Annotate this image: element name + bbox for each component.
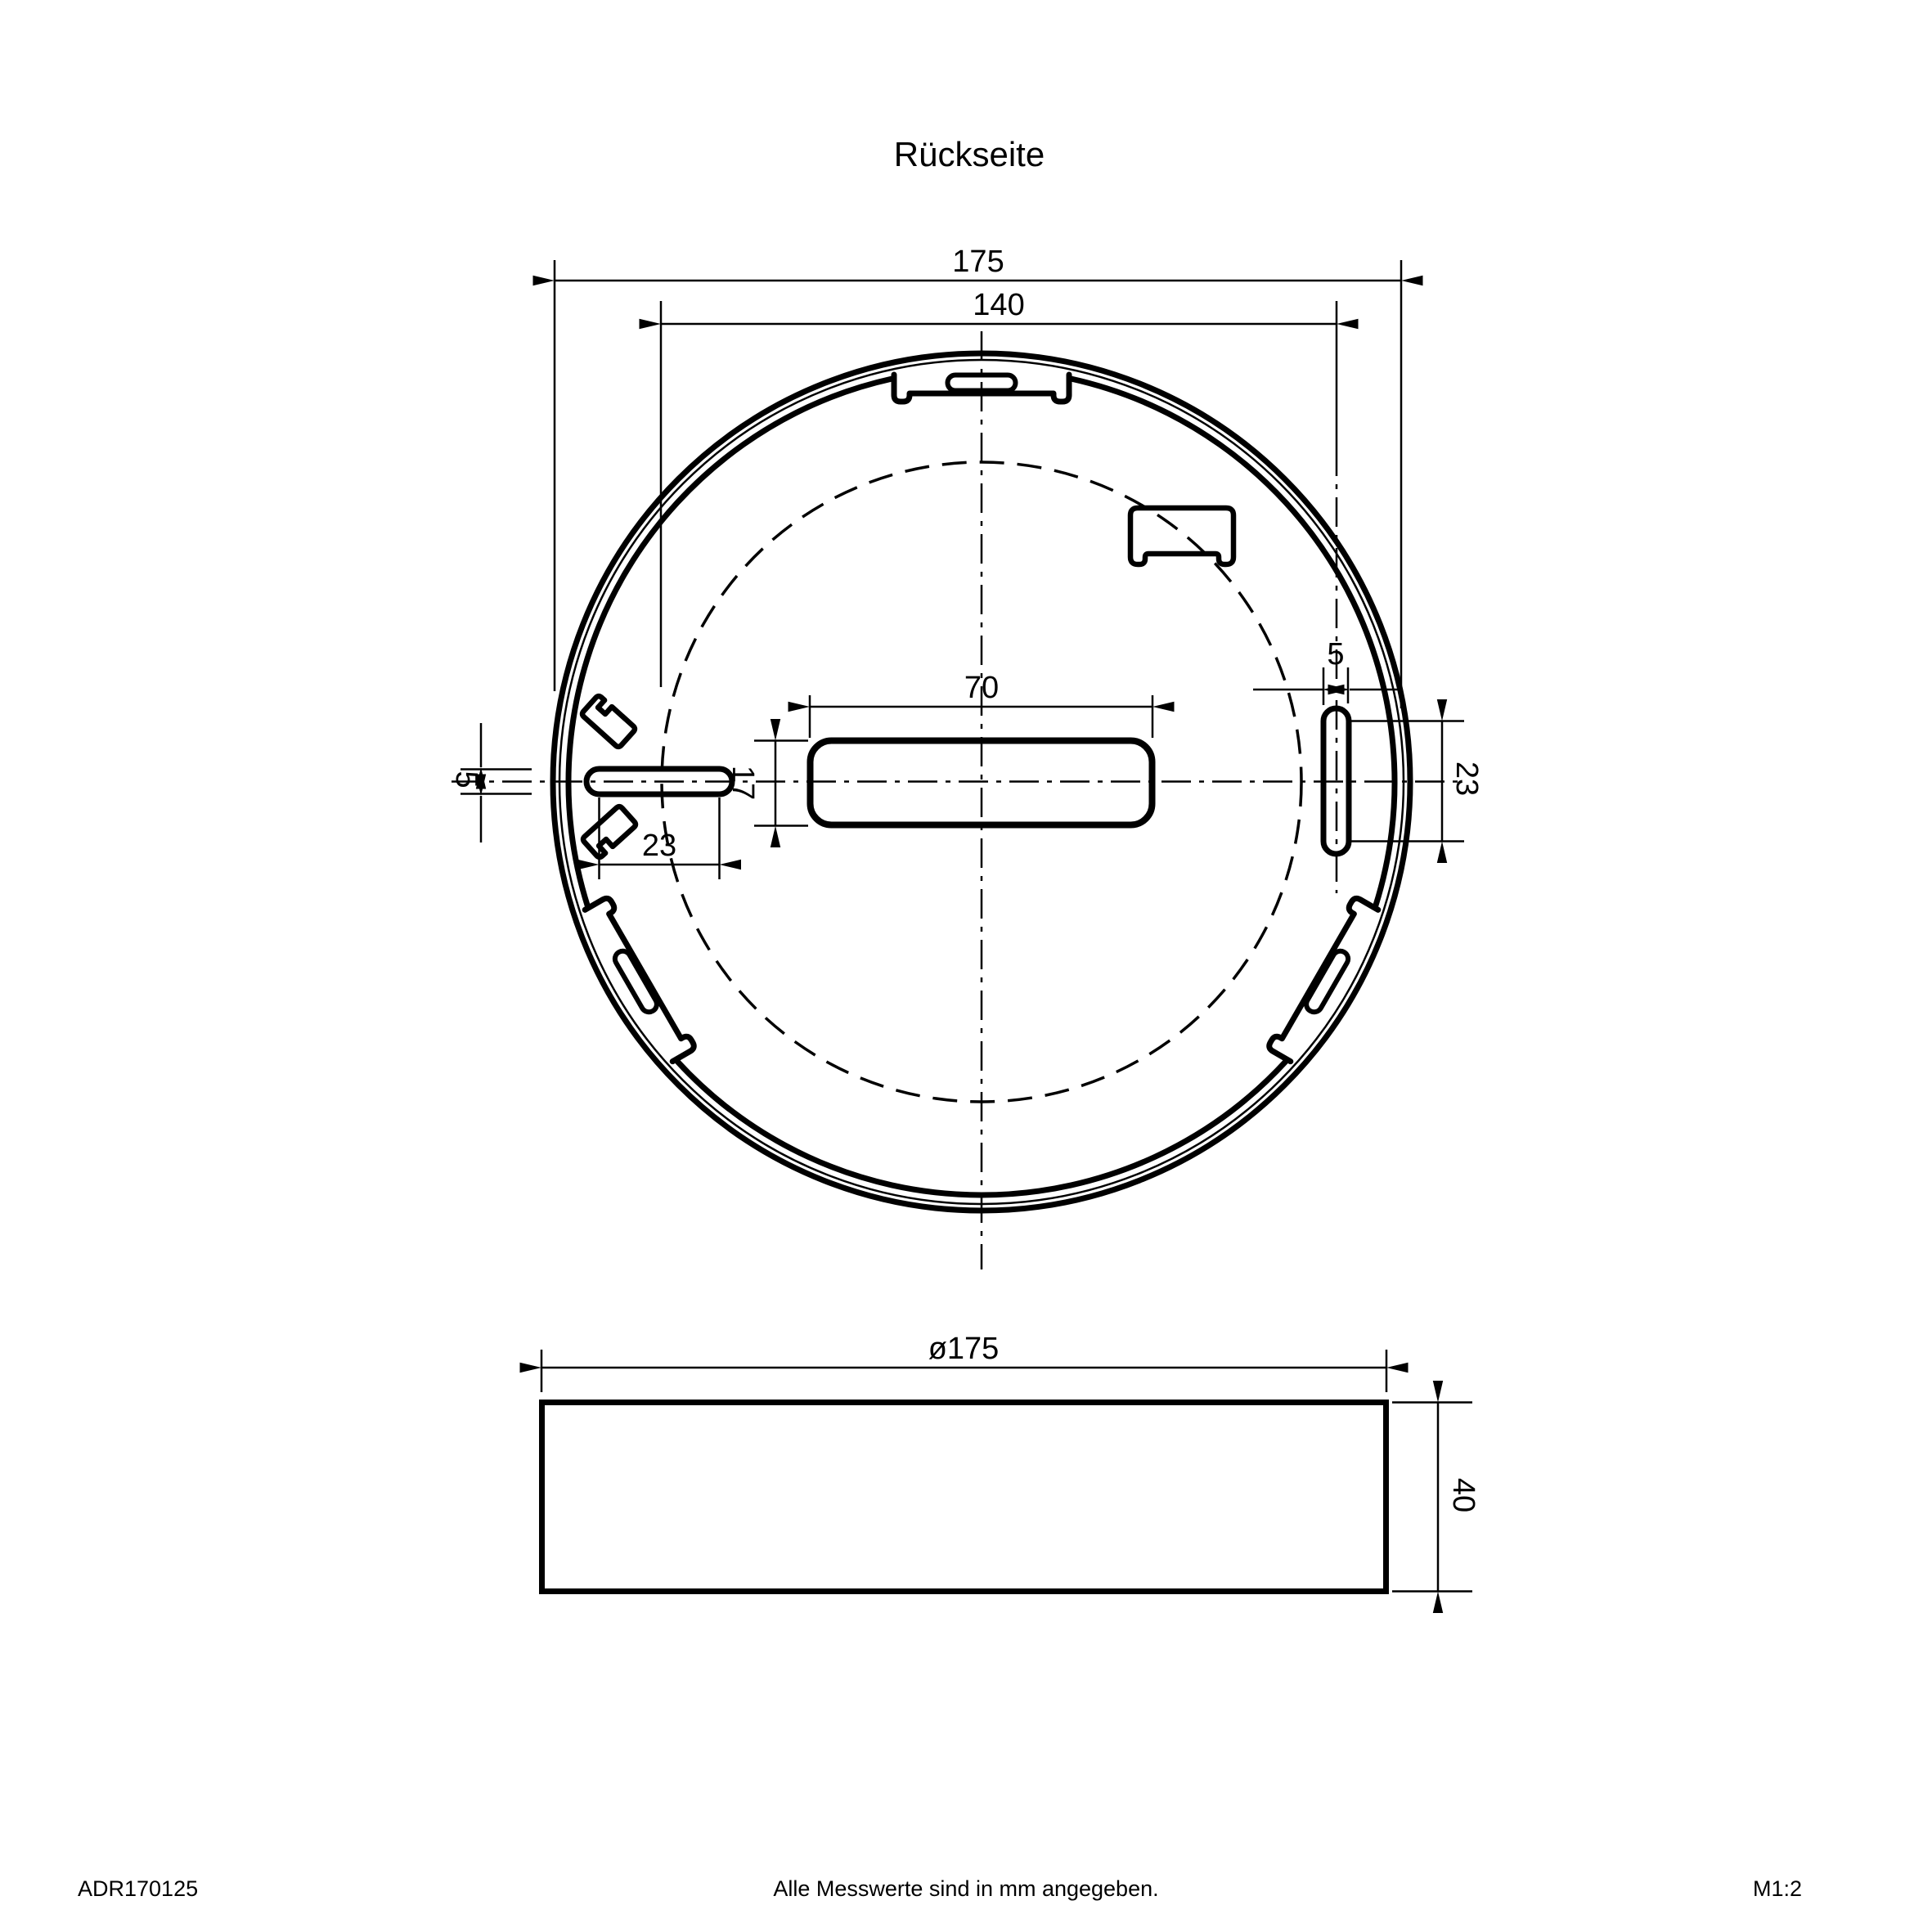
- page-title: Rückseite: [894, 135, 1045, 173]
- dim-text-140: 140: [973, 288, 1024, 322]
- side-view: ø175 40: [541, 1332, 1480, 1592]
- footer: ADR170125 Alle Messwerte sind in mm ange…: [78, 1876, 1802, 1901]
- drawing-page: { "title": "Rückseite", "top_view": { "d…: [0, 0, 1932, 1932]
- dim-text-23-left: 23: [642, 829, 676, 863]
- latch-clip-upper: [581, 694, 636, 748]
- dim-text-5-left: 5: [449, 771, 483, 788]
- dim-text-70: 70: [964, 671, 999, 705]
- dim-text-40: 40: [1446, 1478, 1480, 1512]
- latch-clip-lower: [582, 805, 636, 858]
- technical-drawing-canvas: 175 140 70 17 5: [0, 0, 1932, 1932]
- dim-side-diameter: ø175: [541, 1332, 1386, 1392]
- top-view: 175 140 70 17 5: [449, 245, 1484, 1269]
- dim-text-dia175: ø175: [928, 1332, 1000, 1366]
- dim-center-slot-height: 17: [726, 741, 808, 826]
- dim-text-23-right: 23: [1449, 762, 1484, 796]
- dim-left-slot-height: 5: [449, 723, 532, 842]
- footer-scale: M1:2: [1753, 1876, 1802, 1901]
- footer-note: Alle Messwerte sind in mm angegeben.: [773, 1876, 1158, 1901]
- footer-article-number: ADR170125: [78, 1876, 198, 1901]
- dim-mounting-circle: 140: [661, 288, 1337, 687]
- cable-bracket: [1130, 508, 1233, 564]
- dim-side-height: 40: [1392, 1403, 1480, 1592]
- dim-text-175: 175: [952, 245, 1004, 279]
- side-view-body: [542, 1403, 1386, 1592]
- dim-text-17: 17: [726, 766, 760, 800]
- dim-text-5-right: 5: [1327, 637, 1344, 672]
